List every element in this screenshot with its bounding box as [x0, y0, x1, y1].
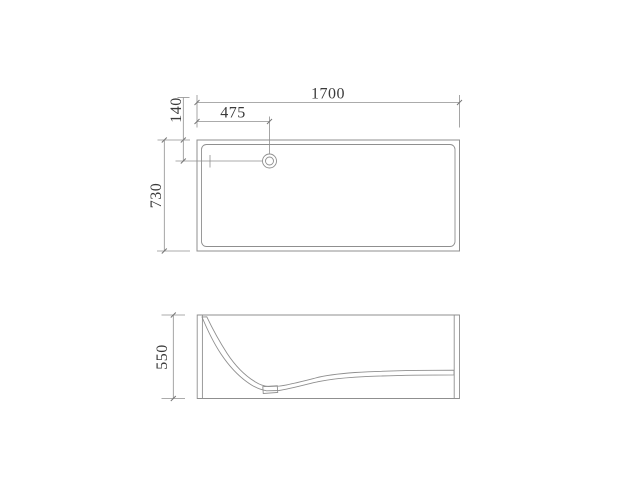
dimension-drain-offset: 475 [195, 105, 273, 154]
dim-label-height: 550 [154, 344, 171, 370]
dimension-drain-depth: 140 [168, 97, 262, 167]
side-view: 550 [154, 313, 460, 402]
top-view: 1700 475 140 [148, 86, 462, 254]
right-wall-section [454, 315, 459, 399]
dim-label-drain-offset: 475 [220, 105, 246, 122]
technical-drawing: 1700 475 140 [0, 0, 640, 480]
dim-label-drain-depth: 140 [168, 97, 185, 123]
tub-outer-outline [197, 140, 460, 251]
dimension-height: 550 [154, 313, 185, 402]
dim-label-length: 1700 [311, 86, 345, 103]
tub-shell-section [202, 317, 454, 391]
drawing-svg: 1700 475 140 [0, 0, 640, 480]
left-wall-section [197, 315, 202, 399]
drain-hole-icon [263, 154, 277, 168]
dim-label-width: 730 [148, 183, 165, 209]
tub-inner-outline [202, 145, 456, 247]
